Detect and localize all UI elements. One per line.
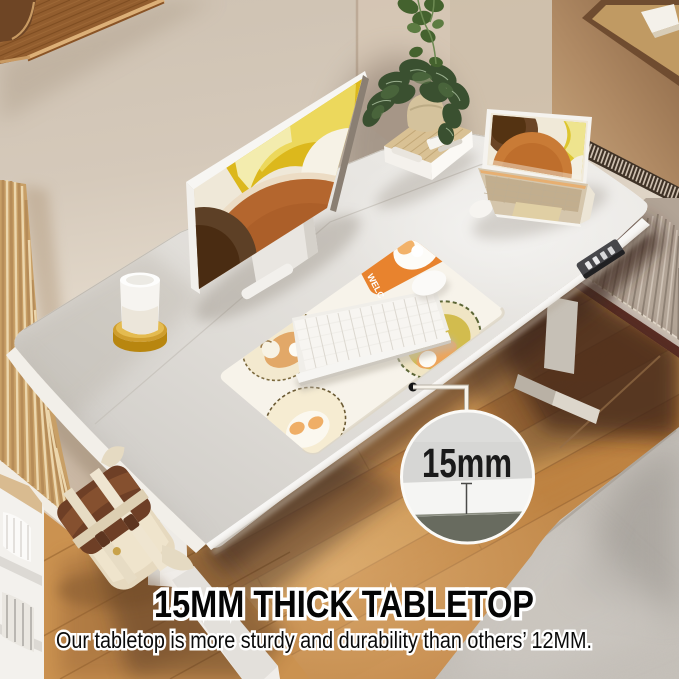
svg-text:15mm: 15mm [422,440,512,486]
svg-text:Our tabletop is more sturdy an: Our tabletop is more sturdy and durabili… [56,627,592,653]
svg-text:15MM THICK TABLETOP: 15MM THICK TABLETOP [154,584,534,626]
